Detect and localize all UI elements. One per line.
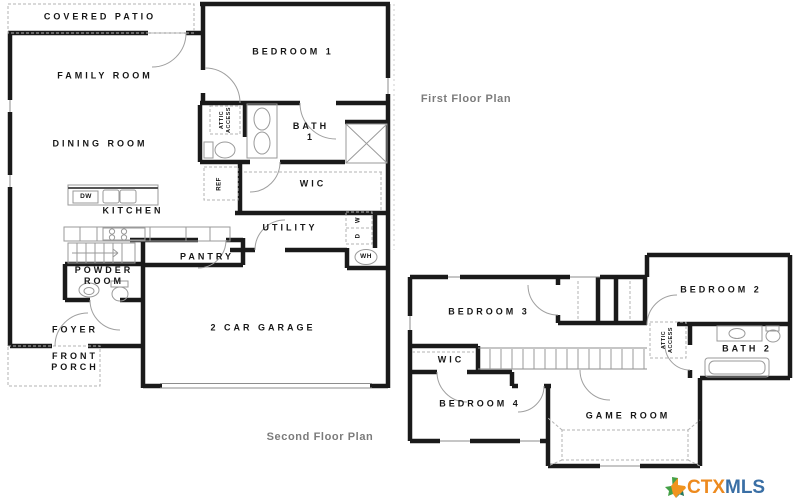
logo-text-mls: MLS bbox=[725, 478, 765, 497]
room-label-bedroom-4: BEDROOM 4 bbox=[439, 398, 521, 409]
label-refrigerator: REF bbox=[216, 177, 224, 191]
floor-plan-image: COVERED PATIO FAMILY ROOM BEDROOM 1 DINI… bbox=[0, 0, 800, 500]
second-floor-plan-title: Second Floor Plan bbox=[267, 431, 374, 443]
room-label-dining-room: DINING ROOM bbox=[53, 138, 148, 149]
first-floor-door-arcs bbox=[55, 4, 394, 346]
label-attic-access-second: ATTIC ACCESS bbox=[661, 327, 675, 353]
room-label-front-porch: FRONT PORCH bbox=[51, 351, 99, 374]
room-label-game-room: GAME ROOM bbox=[586, 410, 671, 421]
room-label-covered-patio: COVERED PATIO bbox=[44, 11, 156, 22]
label-water-heater: WH bbox=[360, 253, 372, 261]
second-floor-stairs bbox=[490, 349, 644, 369]
first-floor-stairs bbox=[68, 243, 135, 263]
logo-text-ctx: CTX bbox=[687, 478, 725, 497]
room-label-bedroom-1: BEDROOM 1 bbox=[252, 46, 334, 57]
second-floor-windows-and-thin-lines bbox=[410, 277, 647, 466]
room-label-family-room: FAMILY ROOM bbox=[57, 70, 153, 81]
room-label-bath-2: BATH 2 bbox=[722, 343, 772, 354]
first-floor-plan-title: First Floor Plan bbox=[421, 93, 511, 105]
label-dishwasher: DW bbox=[80, 193, 92, 201]
label-dryer: D bbox=[355, 234, 363, 239]
room-label-kitchen: KITCHEN bbox=[103, 205, 164, 216]
room-label-wic-first: WIC bbox=[300, 178, 327, 189]
texas-state-icon bbox=[663, 475, 687, 499]
ctxmls-watermark: CTXMLS bbox=[663, 474, 765, 500]
room-label-wic-second: WIC bbox=[438, 354, 465, 365]
room-label-pantry: PANTRY bbox=[180, 251, 234, 262]
label-attic-access-first: ATTIC ACCESS bbox=[219, 107, 233, 133]
room-label-powder-room: POWDER ROOM bbox=[75, 265, 134, 288]
room-label-foyer: FOYER bbox=[52, 324, 98, 335]
room-label-bath-1: BATH 1 bbox=[293, 121, 329, 144]
label-washer: W bbox=[355, 217, 363, 223]
room-label-utility: UTILITY bbox=[263, 222, 318, 233]
room-label-garage: 2 CAR GARAGE bbox=[210, 322, 315, 333]
room-label-bedroom-3: BEDROOM 3 bbox=[448, 306, 530, 317]
room-label-bedroom-2: BEDROOM 2 bbox=[680, 284, 762, 295]
